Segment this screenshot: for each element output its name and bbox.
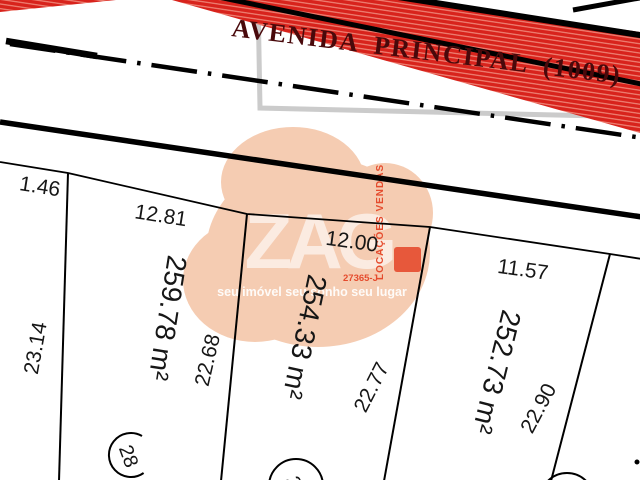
side-measure: 22.90 — [516, 380, 561, 437]
watermark-registry: 27365-J — [343, 273, 378, 284]
lot-number-marks — [109, 433, 640, 480]
lot-divider — [59, 173, 68, 480]
plan-drawing: ZAG LOCAÇÕES VENDAS 27365-J seu imóvel s… — [0, 0, 640, 480]
front-measure: 1.46 — [18, 172, 62, 201]
avenue-band-sliver — [0, 0, 116, 12]
lot-number-circle — [540, 473, 594, 480]
front-measure: 12.81 — [133, 200, 189, 231]
front-measure: 11.57 — [496, 255, 550, 285]
side-measure: 22.77 — [350, 359, 394, 416]
lot-divider — [551, 254, 610, 480]
watermark-logo-square — [394, 247, 421, 272]
side-measure: 22.68 — [191, 332, 225, 388]
lot-number: 28 — [114, 442, 142, 470]
survey-dot — [635, 460, 640, 465]
side-measure: 23.14 — [20, 320, 52, 376]
subdivision-plan: ZAG LOCAÇÕES VENDAS 27365-J seu imóvel s… — [0, 0, 640, 480]
lot-area: 259.78 m² — [143, 253, 193, 382]
road-edge-line — [573, 0, 640, 10]
lot-area: 252.73 m² — [466, 307, 527, 437]
lot-number: 2 — [281, 473, 305, 480]
